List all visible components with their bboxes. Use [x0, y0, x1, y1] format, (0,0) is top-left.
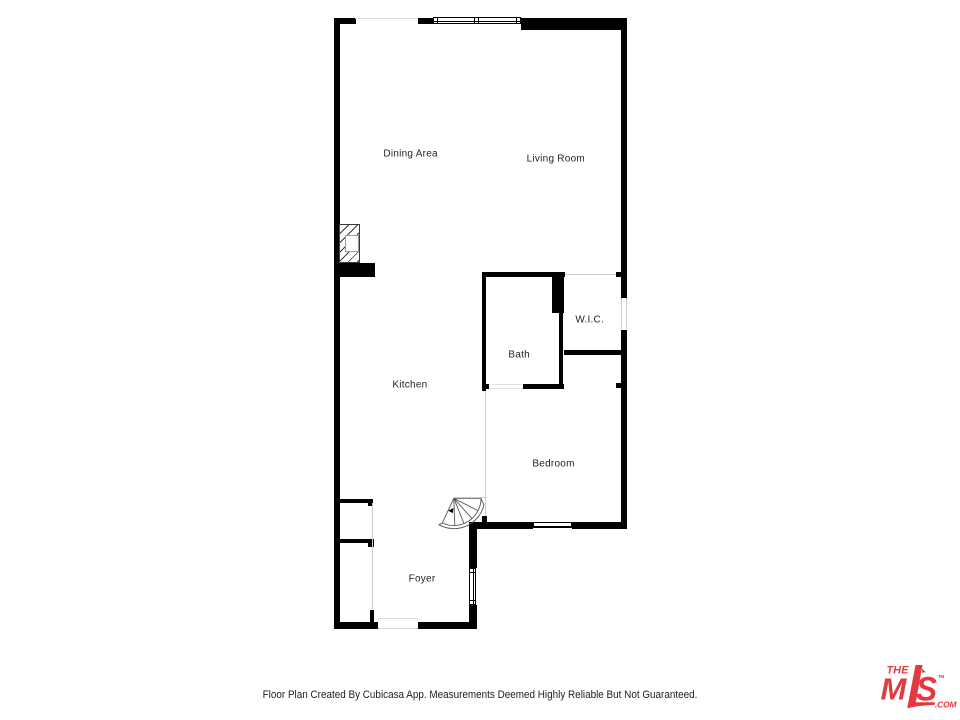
- svg-text:M: M: [881, 671, 908, 706]
- svg-text:.COM: .COM: [935, 700, 958, 710]
- svg-text:TM: TM: [938, 674, 945, 679]
- svg-text:S: S: [916, 671, 937, 709]
